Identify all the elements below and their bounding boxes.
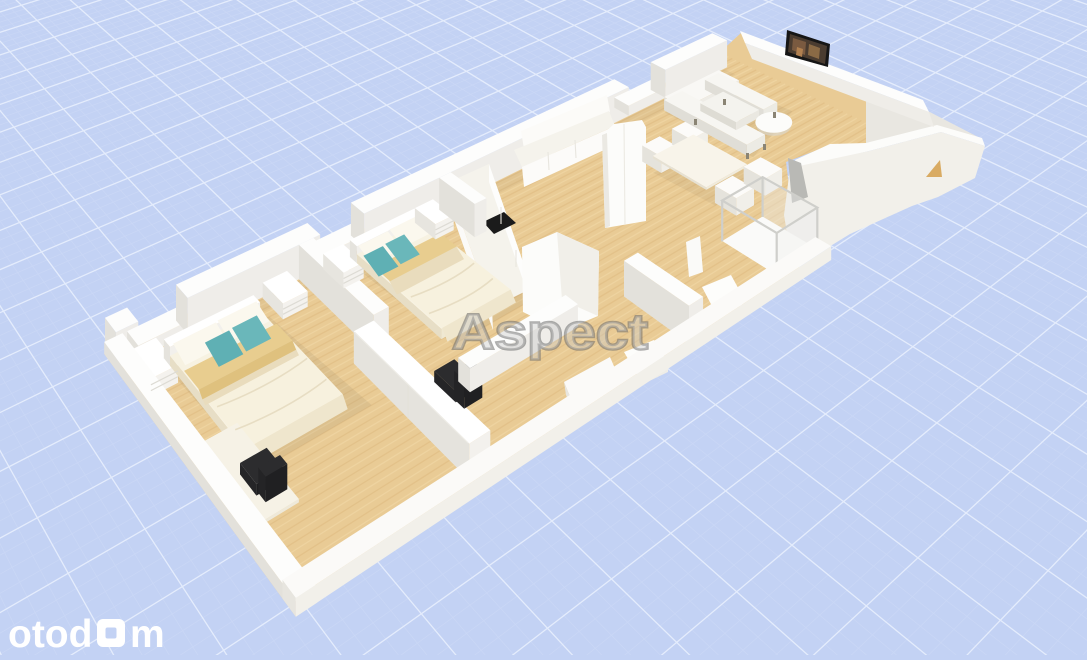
svg-text:Aspect: Aspect [452,304,648,360]
svg-text:m: m [130,613,165,655]
svg-text:otod: otod [8,613,92,655]
